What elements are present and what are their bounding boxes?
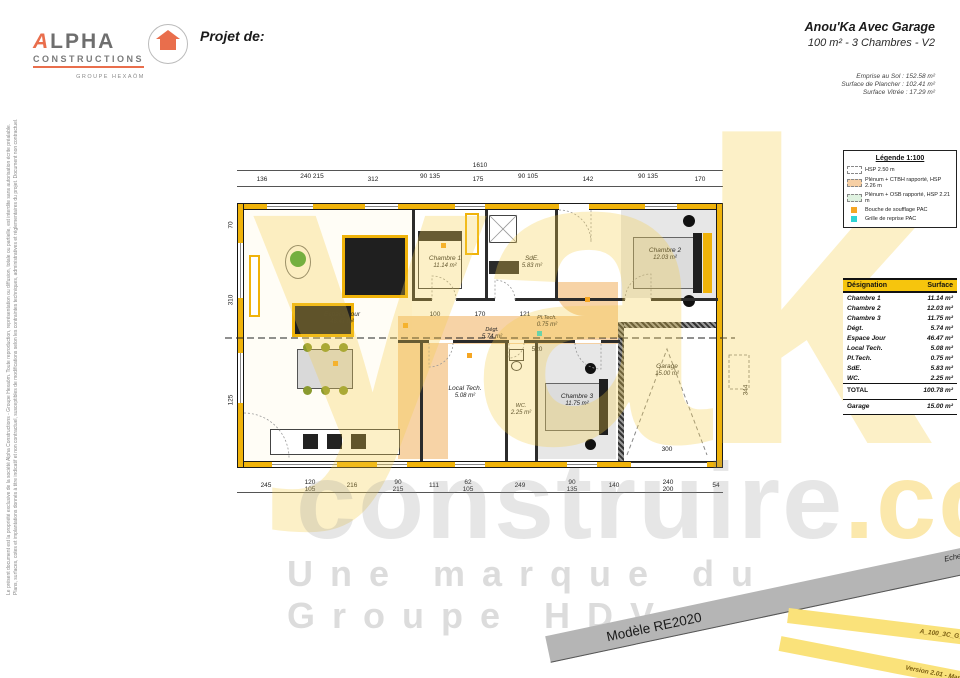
dim-bottom: 216 <box>347 482 358 489</box>
legend-item: Grille de reprise PAC <box>847 216 953 222</box>
legend-swatch-plenum-ctbh <box>847 179 862 187</box>
dim-bottom: 90 215 <box>389 479 407 493</box>
dim-top: 312 <box>368 176 379 183</box>
legend-swatch-plenum-osb <box>847 194 862 202</box>
dim-top: 90 105 <box>518 173 538 180</box>
dim-left: 125 <box>228 395 235 406</box>
dim-bottom: 120 105 <box>300 479 320 493</box>
logo-house-icon <box>148 24 188 64</box>
table-row: Chambre 111.14 m² <box>843 293 957 303</box>
legend-soufflage-icon <box>851 207 857 213</box>
dim-bottom: 140 <box>609 482 620 489</box>
surface-vitree: Surface Vitrée : 17.29 m² <box>635 89 935 97</box>
label-sde: SdE.5.83 m² <box>522 255 542 270</box>
plan-linework <box>237 203 723 468</box>
table-row: WC.2.25 m² <box>843 373 957 383</box>
dim-left: 70 <box>228 221 235 228</box>
label-pl-tech: Pl.Tech.0.75 m² <box>537 315 557 328</box>
dim-top: 90 135 <box>420 173 440 180</box>
surface-emprise: Emprise au Sol : 152.58 m² <box>635 73 935 81</box>
dim-overall: 1610 <box>473 162 487 169</box>
table-row: Espace Jour46.47 m² <box>843 333 957 343</box>
dim-bottom: 249 <box>515 482 526 489</box>
dim-top: 136 <box>257 176 268 183</box>
table-row-total: TOTAL100.78 m² <box>843 383 957 397</box>
label-degt: Dégt.5.74 m² <box>482 327 502 340</box>
version-banner: Version 2.01 - Mars 2023 <box>779 636 960 678</box>
legal-disclaimer: Le présent document est la propriété exc… <box>6 95 19 595</box>
project-label: Projet de: <box>200 28 265 44</box>
dim-inner: 121 <box>520 311 531 318</box>
document-title-block: Anou'Ka Avec Garage 100 m² - 3 Chambres … <box>635 20 935 97</box>
dimension-line-top <box>237 170 723 171</box>
model-title: Anou'Ka Avec Garage <box>635 20 935 34</box>
label-chambre2: Chambre 212.03 m² <box>649 247 681 262</box>
legend-item: HSP 2.50 m <box>847 166 953 174</box>
label-local-tech: Local Tech.5.08 m² <box>448 385 481 400</box>
label-wc: WC.2.25 m² <box>511 403 531 416</box>
dim-bottom: 240 200 <box>657 479 679 493</box>
label-chambre1: Chambre 111.14 m² <box>429 255 461 270</box>
table-row-garage: Garage15.00 m² <box>843 399 957 415</box>
dim-bottom: 62 105 <box>459 479 477 493</box>
model-name: Modèle RE2020 <box>605 609 703 644</box>
plan-sheet: ALPHA CONSTRUCTIONS GROUPE HEXAÖM Projet… <box>0 0 960 678</box>
label-garage: Garage15.00 m² <box>655 363 679 378</box>
table-row: Dégt.5.74 m² <box>843 323 957 333</box>
logo-group-name: GROUPE HEXAÖM <box>33 74 188 80</box>
table-row: Chambre 311.75 m² <box>843 313 957 323</box>
dim-inner: 170 <box>475 311 486 318</box>
dim-inner: 100 <box>430 311 441 318</box>
legend-title: Légende 1:100 <box>847 155 953 162</box>
dim-left: 310 <box>228 295 235 306</box>
dim-bottom: 54 <box>712 482 719 489</box>
company-logo: ALPHA CONSTRUCTIONS GROUPE HEXAÖM <box>33 30 188 80</box>
model-subtitle: 100 m² - 3 Chambres - V2 <box>635 37 935 49</box>
label-espace-jour: Espace Jour46.47 m² <box>324 311 360 326</box>
legend-box: Légende 1:100 HSP 2.50 m Plénum + CTBH r… <box>843 150 957 228</box>
dim-bottom: 245 <box>261 482 272 489</box>
legend-item: Plénum + CTBH rapporté, HSP 2.26 m <box>847 177 953 189</box>
dim-hall: 520 <box>532 346 543 353</box>
dim-bottom: 111 <box>429 482 439 489</box>
logo-wordmark: ALPHA <box>33 30 144 54</box>
surface-plancher: Surface de Plancher : 102.41 m² <box>635 81 935 89</box>
surface-table: Désignation Surface Chambre 111.14 m² Ch… <box>843 278 957 415</box>
version-label: Version 2.01 - Mars 2023 <box>905 664 960 678</box>
dim-top: 170 <box>695 176 706 183</box>
legend-item: Bouche de soufflage PAC <box>847 207 953 213</box>
dimension-line-top2 <box>237 186 723 187</box>
dim-right: 344 <box>743 385 750 396</box>
dim-garage-door: 300 <box>662 446 673 453</box>
floor-plan: Espace Jour46.47 m² Chambre 111.14 m² Sd… <box>237 203 723 468</box>
surface-table-header: Désignation Surface <box>843 278 957 293</box>
label-chambre3: Chambre 311.75 m² <box>561 393 593 408</box>
table-row: SdE.5.83 m² <box>843 363 957 373</box>
table-row: Pl.Tech.0.75 m² <box>843 353 957 363</box>
dim-top: 142 <box>583 176 594 183</box>
dim-bottom: 90 135 <box>563 479 581 493</box>
table-row: Chambre 212.03 m² <box>843 303 957 313</box>
dim-top: 175 <box>473 176 484 183</box>
model-banner: Modèle RE2020 Echelle : 1/75è <box>545 534 960 662</box>
table-row: Local Tech.5.08 m² <box>843 343 957 353</box>
logo-subtitle: CONSTRUCTIONS <box>33 54 144 68</box>
dim-top: 90 135 <box>638 173 658 180</box>
scale-label: Echelle : 1/75è <box>943 544 960 563</box>
model-code: A_100_3C_G_V2 <box>919 628 960 641</box>
legend-swatch-hsp <box>847 166 862 174</box>
legend-reprise-icon <box>851 216 857 222</box>
legend-item: Plénum + OSB rapporté, HSP 2.21 m <box>847 192 953 204</box>
dim-top: 240 215 <box>300 173 324 180</box>
